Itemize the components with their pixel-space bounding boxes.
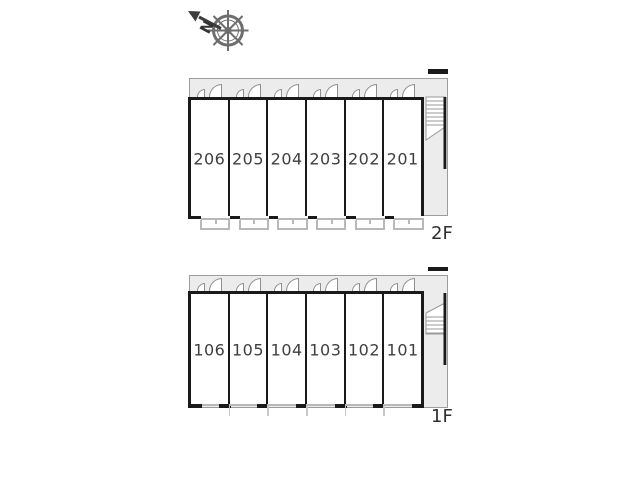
balcony-tick [369, 220, 371, 224]
staircase [421, 288, 448, 373]
room-number: 206 [191, 150, 228, 169]
room-cell: 101 [384, 294, 421, 404]
partition-tick [229, 406, 231, 416]
room-cell: 102 [346, 294, 385, 404]
room-cell: 106 [191, 294, 230, 404]
floor-label: 2F [431, 223, 453, 244]
room-number: 105 [230, 341, 267, 360]
meter-door-icon [390, 89, 398, 97]
balcony [200, 220, 230, 230]
room-cell: 103 [307, 294, 346, 404]
balcony-tick [292, 220, 294, 224]
balcony-tick [408, 220, 410, 224]
room-block-2f: 206 205 204 203 [188, 97, 424, 219]
balcony [316, 220, 346, 230]
partition-tick [383, 406, 385, 416]
balcony-tick [331, 220, 333, 224]
stair-wall [444, 97, 447, 169]
room-number: 103 [307, 341, 344, 360]
wall-stub [412, 404, 424, 408]
room-cell: 105 [230, 294, 269, 404]
room-number: 202 [346, 150, 383, 169]
room-cell: 203 [307, 100, 346, 216]
room-number: 203 [307, 150, 344, 169]
floor-plan-canvas: N 206 20 [0, 0, 640, 480]
room-cell: 205 [230, 100, 269, 216]
room-cell: 204 [268, 100, 307, 216]
compass-rose-icon: N [184, 3, 256, 59]
stair-treads [426, 101, 445, 125]
room-number: 205 [230, 150, 267, 169]
room-cell: 202 [346, 100, 385, 216]
partition-tick [306, 406, 308, 416]
meter-door-icon [274, 89, 282, 97]
meter-door-icon [390, 283, 398, 291]
floor-label: 1F [431, 406, 453, 427]
staircase [421, 90, 448, 175]
wall-segment [428, 69, 448, 74]
room-number: 101 [384, 341, 421, 360]
wall-segment [428, 267, 448, 272]
partition-tick [267, 406, 269, 416]
balcony-tick [215, 220, 217, 224]
room-number: 102 [346, 341, 383, 360]
wall-stub [188, 404, 202, 408]
room-number: 204 [268, 150, 305, 169]
room-number: 104 [268, 341, 305, 360]
room-cell: 104 [268, 294, 307, 404]
room-number: 201 [384, 150, 421, 169]
room-block-1f: 106 105 104 [188, 291, 424, 404]
balcony-tick [253, 220, 255, 224]
stair-wall [444, 293, 447, 365]
room-cell: 201 [384, 100, 421, 216]
partition-tick [345, 406, 347, 416]
room-number: 106 [191, 341, 228, 360]
balcony [393, 220, 423, 230]
balcony [277, 220, 307, 230]
balcony [355, 220, 385, 230]
balcony [239, 220, 269, 230]
room-cell: 206 [191, 100, 230, 216]
meter-door-icon [274, 283, 282, 291]
